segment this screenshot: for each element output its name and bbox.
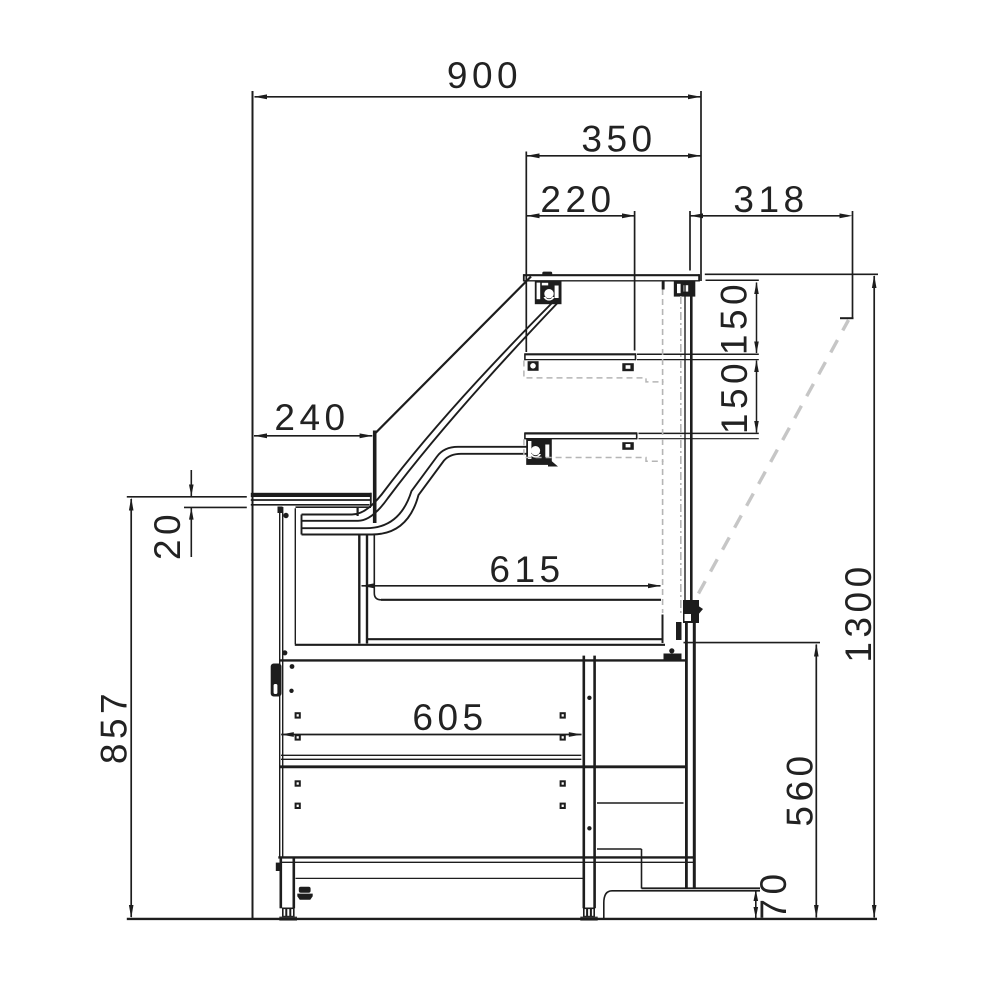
svg-text:318: 318 (733, 179, 808, 220)
svg-text:240: 240 (274, 397, 349, 438)
svg-text:220: 220 (540, 179, 615, 220)
svg-text:150: 150 (714, 280, 755, 355)
svg-text:70: 70 (753, 869, 794, 919)
svg-text:615: 615 (489, 549, 564, 590)
svg-text:20: 20 (147, 510, 188, 560)
svg-text:900: 900 (447, 55, 522, 96)
svg-text:350: 350 (581, 119, 656, 160)
svg-text:1300: 1300 (838, 562, 879, 662)
svg-text:560: 560 (780, 751, 821, 826)
svg-text:857: 857 (94, 689, 135, 764)
svg-text:605: 605 (412, 697, 487, 738)
svg-text:150: 150 (714, 359, 755, 434)
